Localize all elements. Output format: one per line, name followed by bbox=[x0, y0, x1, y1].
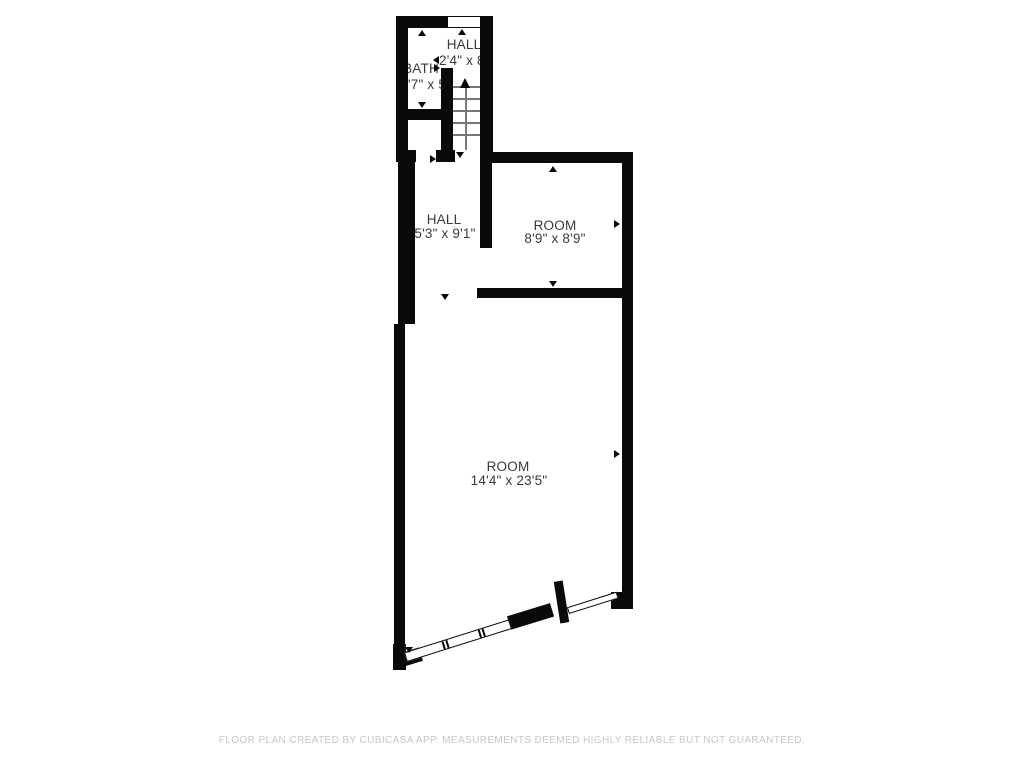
dim-arrow-down-icon bbox=[456, 152, 464, 158]
dim-arrow-up-icon bbox=[458, 29, 466, 35]
room-small-dims: 8'9" x 8'9" bbox=[524, 231, 585, 246]
dim-arrow-right-icon bbox=[614, 220, 620, 228]
stair-tread bbox=[453, 122, 480, 124]
dim-arrow-down-icon bbox=[549, 281, 557, 287]
dim-arrow-left-icon bbox=[397, 450, 403, 458]
window-top-icon bbox=[447, 16, 481, 28]
stair-tread bbox=[453, 134, 480, 136]
room-large-dims: 14'4" x 23'5" bbox=[471, 473, 548, 488]
hall-upper-label: HALL bbox=[447, 37, 482, 52]
hall-upper-dims: 2'4" x 8' bbox=[434, 53, 481, 69]
wall-upper-right bbox=[480, 16, 493, 163]
dim-arrow-left-icon bbox=[409, 155, 415, 163]
footer-disclaimer: FLOOR PLAN CREATED BY CUBICASA APP. MEAS… bbox=[219, 735, 805, 746]
stair-up-arrow-icon bbox=[460, 78, 470, 88]
stair-direction-line bbox=[465, 88, 467, 150]
window-mullion-icon bbox=[441, 641, 445, 649]
door-post bbox=[507, 603, 554, 630]
hall-label: HALL bbox=[427, 212, 462, 227]
wall-room-left bbox=[480, 163, 492, 248]
dim-arrow-right-icon bbox=[614, 450, 620, 458]
dim-arrow-left-icon bbox=[483, 220, 489, 228]
hall-dims: 5'3" x 9'1" bbox=[414, 226, 475, 241]
dim-arrow-left-icon bbox=[399, 64, 405, 72]
window-mullion-icon bbox=[478, 630, 482, 638]
dim-arrow-up-icon bbox=[418, 30, 426, 36]
wall-hall-left-thick bbox=[398, 162, 415, 324]
window-mullion-icon bbox=[445, 640, 449, 648]
wall-right bbox=[622, 163, 633, 600]
dim-arrow-right-icon bbox=[430, 155, 436, 163]
window-mullion-icon bbox=[482, 629, 486, 637]
window-strip-icon bbox=[404, 619, 512, 662]
dim-arrow-down-icon bbox=[405, 647, 413, 653]
stair-tread bbox=[453, 110, 480, 112]
stair-tread bbox=[453, 98, 480, 100]
wall-room-top bbox=[480, 152, 633, 163]
dim-arrow-up-icon bbox=[549, 166, 557, 172]
wall-upper-left bbox=[396, 16, 408, 162]
dim-arrow-right-icon bbox=[434, 64, 440, 72]
floor-plan: BATH '7" x 5'5" HALL 2'4" x 8' HALL 5'3"… bbox=[0, 0, 1024, 768]
wall-room-bottom bbox=[477, 288, 633, 298]
wall-landing-stub-right bbox=[436, 150, 455, 162]
dim-arrow-down-icon bbox=[441, 294, 449, 300]
wall-bath-bottom bbox=[396, 109, 453, 120]
wall-bath-divider-upper bbox=[441, 68, 453, 109]
dim-arrow-left-icon bbox=[433, 56, 439, 64]
dim-arrow-down-icon bbox=[418, 102, 426, 108]
wall-large-room-left bbox=[394, 324, 405, 658]
room-large-label: ROOM bbox=[487, 459, 530, 474]
door-leaf-icon bbox=[554, 581, 569, 624]
hall-upper-dims-text: 2'4" x 8' bbox=[439, 53, 481, 68]
